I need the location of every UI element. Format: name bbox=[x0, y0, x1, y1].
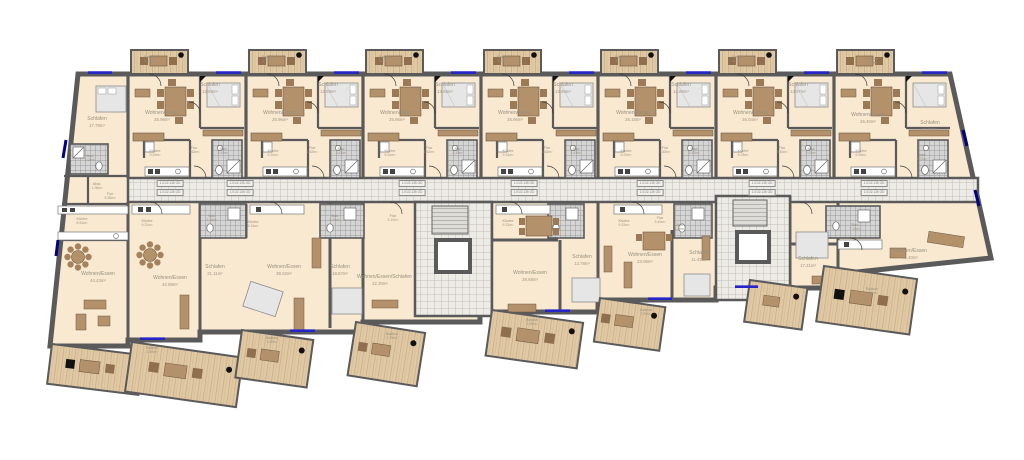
room-label-balkon: Balkon3.59m² bbox=[866, 286, 878, 296]
room-label-bad: Bad4.05m² bbox=[85, 153, 96, 163]
corridor-door-tag: 1.01/2.135 OD bbox=[749, 180, 776, 187]
room-label-bad: Bad3.43m² bbox=[218, 146, 229, 156]
room-label-k-che: Küche8.51m² bbox=[76, 216, 87, 226]
room-label-balkon: Balkon2.76m² bbox=[497, 54, 509, 64]
room-label-wohnen-essen: Wohnen/Essen25.96m² bbox=[380, 110, 414, 122]
room-label-schlafen: Schlafen13.69m² bbox=[671, 82, 690, 94]
room-label-k-che: Küche9.31m² bbox=[149, 148, 160, 158]
room-label-schlafen: Schlafen17.21m² bbox=[798, 256, 817, 268]
room-label-balkon: Balkon3.59m² bbox=[640, 307, 652, 317]
room-label-wohnen-essen: Wohnen/Essen25.96m² bbox=[145, 110, 179, 122]
room-label-schlafen: Schlafen14.58m² bbox=[920, 120, 939, 132]
corridor-door-tag: 1.01/2.135 OD bbox=[511, 189, 538, 196]
room-label-bad: Bad7.19m² bbox=[850, 222, 861, 232]
corridor-door-tag: 1.01/2.135 OD bbox=[861, 180, 888, 187]
room-label-wohnen-essen: Wohnen/Essen25.96m² bbox=[498, 110, 532, 122]
room-label-schlafen: Schlafen13.69m² bbox=[435, 82, 454, 94]
room-label-bad: Bad5.49m² bbox=[675, 222, 686, 232]
room-labels-layer: Schlafen17.78m²Bad4.05m²Abst.1.96m²Flur5… bbox=[0, 0, 1024, 460]
room-label-balkon: Balkon3.59m² bbox=[266, 335, 278, 345]
room-label-wohnen-essen: Wohnen/Essen42.88m² bbox=[153, 275, 187, 287]
room-label-balkon: Balkon2.76m² bbox=[866, 56, 878, 66]
room-label-flur: Flur3.62m² bbox=[189, 145, 200, 155]
room-label-k-che: Küche9.31m² bbox=[502, 218, 513, 228]
room-label-abst-: Abst.1.96m² bbox=[92, 181, 103, 191]
room-label-bad: Bad3.43m² bbox=[336, 146, 347, 156]
room-label-flur: Flur3.62m² bbox=[424, 145, 435, 155]
room-label-k-che: Küche9.31m² bbox=[384, 148, 395, 158]
room-label-schlafen: Schlafen11.43m² bbox=[689, 250, 708, 262]
room-label-k-che: Küche9.23m² bbox=[737, 148, 748, 158]
corridor-door-tag: 1.01/2.135 OD bbox=[157, 189, 184, 196]
room-label-schlafen: Schlafen13.69m² bbox=[200, 82, 219, 94]
room-label-k-che: Küche9.31m² bbox=[620, 148, 631, 158]
room-label-wohnen-essen: Wohnen/Essen26.40m² bbox=[851, 112, 885, 124]
room-label-balkon: Balkon2.76m² bbox=[144, 54, 156, 64]
corridor-door-tag: 1.01/2.135 OD bbox=[749, 189, 776, 196]
room-label-schlafen: Schlafen13.69m² bbox=[553, 82, 572, 94]
room-label-k-che: Küche9.31m² bbox=[141, 218, 152, 228]
room-label-schlafen: Schlafen18.67m² bbox=[330, 264, 349, 276]
room-label-bad: Bad4.06m² bbox=[207, 213, 218, 223]
room-label-wohnen-essen: Wohnen/Essen23.06m² bbox=[628, 252, 662, 264]
room-label-flur: Flur3.62m² bbox=[542, 145, 553, 155]
room-label-wohnen-essen: Wohnen/Essen25.96m² bbox=[263, 110, 297, 122]
room-label-wohnen-essen: Wohnen/Essen26.04m² bbox=[733, 110, 767, 122]
corridor-door-tag: 1.01/2.135 OD bbox=[157, 180, 184, 187]
room-label-k-che: Küche9.31m² bbox=[618, 218, 629, 228]
room-label-balkon: Balkon2.76m² bbox=[615, 54, 627, 64]
room-label-balkon: Balkon2.76m² bbox=[262, 54, 274, 64]
room-label-bad: Bad3.43m² bbox=[689, 146, 700, 156]
room-label-wohnen-essen: Wohnen/Essen38.02m² bbox=[267, 264, 301, 276]
room-label-wohnen-essen: Wohnen/Essen28.68m² bbox=[513, 270, 547, 282]
room-label-wohnen-essen: Wohnen/Essen44.43m² bbox=[81, 271, 115, 283]
corridor-door-tag: 1.01/2.135 OD bbox=[399, 189, 426, 196]
room-label-bad: Bad5.49m² bbox=[330, 213, 341, 223]
room-label-schlafen: Schlafen13.69m² bbox=[318, 82, 337, 94]
corridor-door-tag: 1.01/2.135 OD bbox=[637, 180, 664, 187]
room-label-bad: Bad4.21m² bbox=[917, 152, 928, 162]
room-label-bad: Bad3.43m² bbox=[453, 146, 464, 156]
room-label-wohnen-essen-schlafen: Wohnen/Essen/Schlafen22.30m² bbox=[357, 274, 403, 286]
room-label-balkon: Balkon2.76m² bbox=[379, 54, 391, 64]
room-label-bad: Bad3.43m² bbox=[571, 146, 582, 156]
room-label-schlafen: Schlafen13.78m² bbox=[572, 254, 591, 266]
floor-plan: Schlafen17.78m²Bad4.05m²Abst.1.96m²Flur5… bbox=[0, 0, 1024, 460]
room-label-flur: Flur3.40m² bbox=[655, 215, 666, 225]
room-label-balkon: Balkon3.59m² bbox=[526, 317, 538, 327]
corridor-door-tag: 1.01/2.135 OD bbox=[399, 180, 426, 187]
room-label-schlafen: Schlafen17.78m² bbox=[87, 116, 106, 128]
room-label-balkon: Balkon2.76m² bbox=[732, 54, 744, 64]
corridor-door-tag: 1.01/2.135 OD bbox=[227, 189, 254, 196]
room-label-bad: Bad3.43m² bbox=[806, 146, 817, 156]
room-label-k-che: Küche9.31m² bbox=[247, 219, 258, 229]
room-label-flur: Flur3.10m² bbox=[388, 213, 399, 223]
room-label-balkon: Balkon3.59m² bbox=[146, 345, 158, 355]
room-label-balkon: Balkon2.76m² bbox=[386, 331, 398, 341]
room-label-flur: Flur3.62m² bbox=[660, 145, 671, 155]
room-label-wohnen-essen: Wohnen/Essen41.40m² bbox=[893, 248, 927, 260]
room-label-flur: Flur5.58m² bbox=[105, 191, 116, 201]
room-label-k-che: Küche9.53m² bbox=[855, 148, 866, 158]
room-label-wohnen-essen: Wohnen/Essen26.15m² bbox=[616, 110, 650, 122]
corridor-door-tag: 1.01/2.135 OD bbox=[637, 189, 664, 196]
room-label-schlafen: Schlafen13.57m² bbox=[788, 82, 807, 94]
corridor-door-tag: 1.01/2.135 OD bbox=[227, 180, 254, 187]
room-label-k-che: Küche9.31m² bbox=[502, 148, 513, 158]
corridor-door-tag: 1.01/2.135 OD bbox=[511, 180, 538, 187]
room-label-k-che: Küche9.31m² bbox=[267, 148, 278, 158]
corridor-door-tag: 1.01/2.135 OD bbox=[861, 189, 888, 196]
room-label-flur: Flur3.40m² bbox=[777, 145, 788, 155]
room-label-schlafen: Schlafen21.11m² bbox=[205, 264, 224, 276]
room-label-flur: Flur3.62m² bbox=[307, 145, 318, 155]
